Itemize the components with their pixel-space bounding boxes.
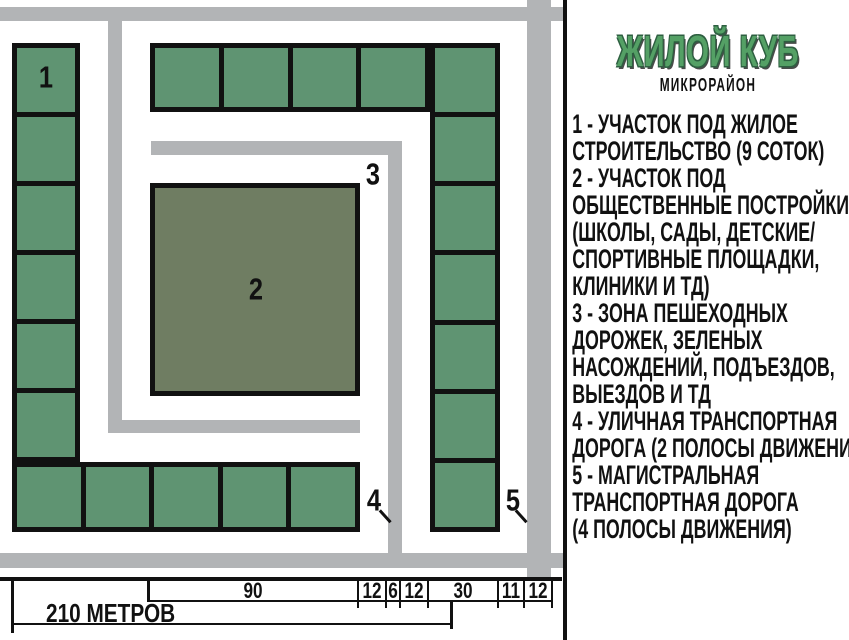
plot-square xyxy=(435,463,495,527)
road-bottom xyxy=(0,553,565,568)
scale-segment-value: 12 xyxy=(510,581,565,601)
plots-right-column xyxy=(430,43,500,532)
legend-item-5-line: (4 ПОЛОСЫ ДВИЖЕНИЯ) xyxy=(572,516,845,543)
plot-square xyxy=(293,48,357,107)
plot-square xyxy=(155,48,219,107)
map-label-zone-1: 1 xyxy=(39,62,53,93)
legend-item-5-line: ТРАНСПОРТНАЯ ДОРОГА xyxy=(572,489,845,516)
plot-square xyxy=(17,324,75,388)
plot-square xyxy=(435,117,495,181)
scale-tick xyxy=(147,581,150,602)
project-subtitle: МИКРОРАЙОН xyxy=(567,75,849,95)
road-highway xyxy=(527,0,551,578)
legend-panel: ЖИЛОЙ КУБ МИКРОРАЙОН 1 - УЧАСТОК ПОД ЖИЛ… xyxy=(567,0,849,640)
scale-tick xyxy=(427,581,430,608)
scale-segment-value: 30 xyxy=(436,581,491,601)
legend-item-3-line: ДОРОЖЕК, ЗЕЛЕНЫХ xyxy=(572,327,845,354)
legend-items: 1 - УЧАСТОК ПОД ЖИЛОЕСТРОИТЕЛЬСТВО (9 СО… xyxy=(567,111,849,543)
plot-square xyxy=(435,255,495,319)
plot-square xyxy=(86,467,150,527)
map-label-zone-3: 3 xyxy=(366,159,380,190)
plots-top-row xyxy=(150,43,430,112)
legend-item-3-line: 3 - ЗОНА ПЕШЕХОДНЫХ xyxy=(572,300,845,327)
legend-item-1-line: СТРОИТЕЛЬСТВО (9 СОТОК) xyxy=(572,138,845,165)
legend-item-2-line: СПОРТИВНЫЕ ПЛОЩАДКИ, xyxy=(572,246,845,273)
legend-item-3-line: НАСОЖДЕНИЙ, ПОДЪЕЗДОВ, xyxy=(572,354,845,381)
legend-item-4-line: ДОРОГА (2 ПОЛОСЫ ДВИЖЕНИЯ) xyxy=(572,435,845,462)
legend-item-2-line: 2 - УЧАСТОК ПОД xyxy=(572,165,845,192)
plot-square xyxy=(361,48,425,107)
plot-square xyxy=(17,117,75,181)
scale-total-label: 210 МЕТРОВ xyxy=(46,602,175,624)
plot-square xyxy=(17,255,75,319)
legend-item-2-line: КЛИНИКИ И ТД) xyxy=(572,273,845,300)
legend-item-1-line: 1 - УЧАСТОК ПОД ЖИЛОЕ xyxy=(572,111,845,138)
plot-square xyxy=(291,467,355,527)
project-title: ЖИЛОЙ КУБ xyxy=(567,30,849,74)
scale-segment-value: 90 xyxy=(226,581,281,601)
plot-square xyxy=(17,186,75,250)
road-inner-bottom xyxy=(108,420,360,433)
plot-square xyxy=(435,325,495,389)
plot-square xyxy=(17,393,75,457)
legend-item-5-line: 5 - МАГИСТРАЛЬНАЯ xyxy=(572,462,845,489)
scale-total-tick-left xyxy=(11,581,14,633)
road-street-left xyxy=(108,21,122,433)
road-top xyxy=(0,7,565,21)
legend-item-3-line: ВЫЕЗДОВ И ТД xyxy=(572,381,845,408)
plots-bottom-row xyxy=(12,462,360,532)
plot-square xyxy=(224,48,288,107)
plot-square xyxy=(223,467,287,527)
plot-square xyxy=(435,48,495,112)
scale-segment-value: 12 xyxy=(387,581,442,601)
plot-square xyxy=(435,186,495,250)
plot-square xyxy=(154,467,218,527)
plots-left-column xyxy=(12,43,80,462)
scale-tick xyxy=(551,581,554,608)
legend-item-2-line: (ШКОЛЫ, САДЫ, ДЕТСКИЕ/ xyxy=(572,219,845,246)
plot-square xyxy=(17,467,81,527)
plot-square xyxy=(435,394,495,458)
road-inner-top xyxy=(151,141,402,155)
legend-item-4-line: 4 - УЛИЧНАЯ ТРАНСПОРТНАЯ xyxy=(572,408,845,435)
map-label-zone-2: 2 xyxy=(249,274,263,305)
site-plan-page: 1 2 3 4 5 210 МЕТРОВ 9012612301112 ЖИЛОЙ… xyxy=(0,0,849,640)
road-street-mid xyxy=(388,141,402,554)
legend-item-2-line: ОБЩЕСТВЕННЫЕ ПОСТРОЙКИ xyxy=(572,192,845,219)
